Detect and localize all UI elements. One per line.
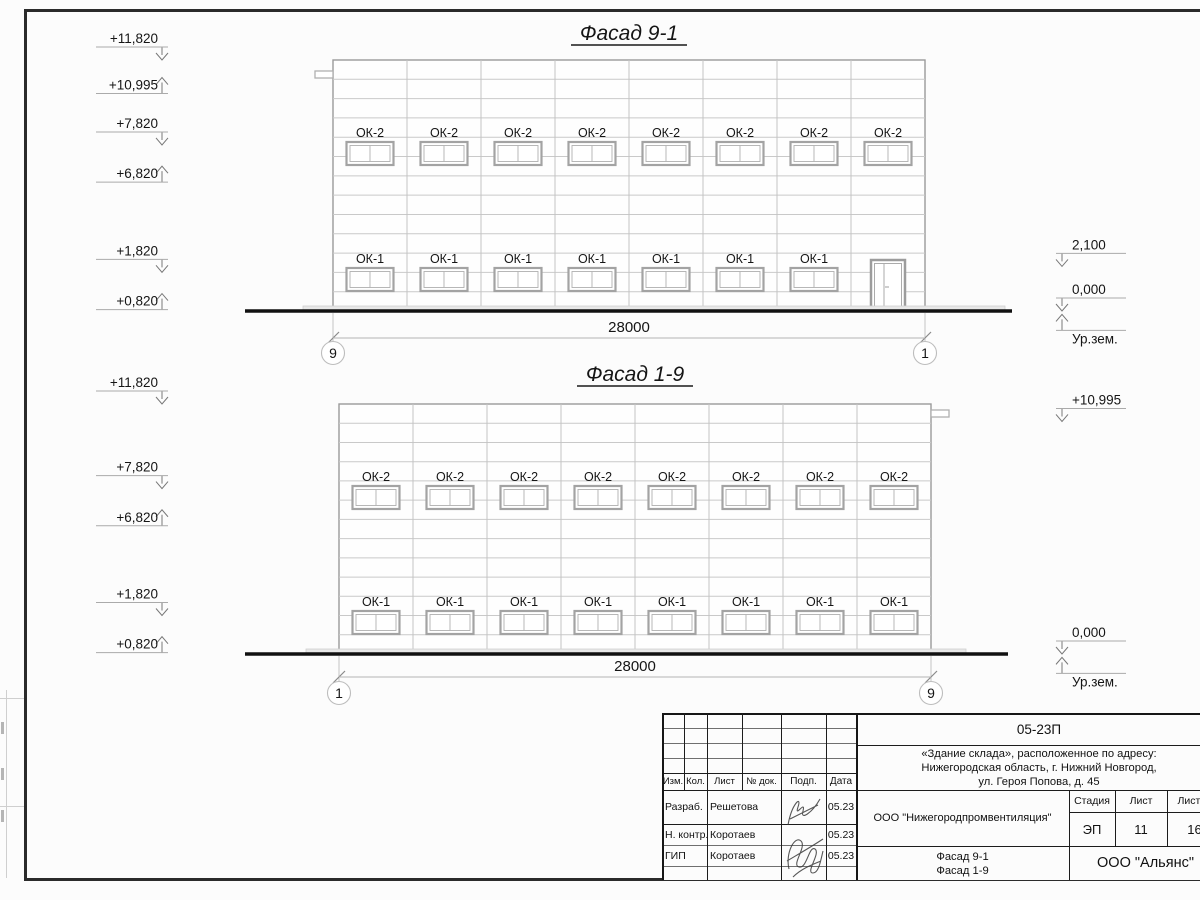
elevation-value: +0,820 [116, 637, 158, 652]
window-label: ОК-2 [658, 470, 686, 484]
elevation-mark: Ур.зем. [1056, 657, 1126, 689]
tb-organization: ООО "Нижегородпромвентиляция" [858, 792, 1067, 844]
tb-address-line2: Нижегородская область, г. Нижний Новгоро… [862, 761, 1200, 775]
window-label: ОК-2 [356, 126, 384, 140]
tb-sheet-label: Лист [1115, 790, 1167, 812]
tb-project-address: «Здание склада», расположенное по адресу… [862, 747, 1200, 789]
window-label: ОК-2 [652, 126, 680, 140]
elevation-value: +7,820 [116, 460, 158, 475]
tb-sheet-value: 11 [1115, 812, 1167, 846]
elevation-mark: +7,820 [96, 116, 168, 145]
window-label: ОК-1 [356, 252, 384, 266]
tb-role-nkontr: Н. контр. [665, 824, 707, 845]
tb-date-gip: 05.23 [826, 845, 856, 866]
window-label: ОК-2 [726, 126, 754, 140]
elevation-mark: +1,820 [96, 243, 168, 272]
tb-sheet-title-line2: Фасад 1-9 [858, 864, 1067, 878]
window-label: ОК-2 [732, 470, 760, 484]
title-block: Изм. Кол. Лист № док. Подп. Дата Разраб.… [662, 713, 1200, 880]
tb-stage-label: Стадия [1069, 790, 1115, 812]
window-label: ОК-1 [504, 252, 532, 266]
tb-sheet-title: Фасад 9-1 Фасад 1-9 [858, 850, 1067, 878]
tb-address-line1: «Здание склада», расположенное по адресу… [862, 747, 1200, 761]
elevation-mark: +0,820 [96, 637, 168, 653]
elevation-value: +11,820 [110, 31, 158, 46]
axis-number: 1 [921, 345, 929, 361]
elevation-mark: +10,995 [96, 78, 168, 94]
window-label: ОК-1 [362, 595, 390, 609]
window-label: ОК-2 [436, 470, 464, 484]
axis-circle-left: 1 [328, 682, 351, 705]
elevation-mark: Ур.зем. [1056, 314, 1126, 346]
elevation-value: +11,820 [110, 375, 158, 390]
window-label: ОК-2 [800, 126, 828, 140]
roof-drain-tab [315, 71, 333, 78]
facade-view-Фасад-1-9: Фасад 1-9ОК-2ОК-2ОК-2ОК-2ОК-2ОК-2ОК-2ОК-… [96, 363, 1126, 705]
axis-circle-right: 9 [920, 682, 943, 705]
tb-col-ndok: № док. [742, 773, 781, 790]
elevation-value: +7,820 [116, 116, 158, 131]
tb-stage-value: ЭП [1069, 812, 1115, 846]
window-label: ОК-2 [806, 470, 834, 484]
elevation-value: 0,000 [1072, 282, 1106, 297]
window-label: ОК-1 [510, 595, 538, 609]
facade-title: Фасад 1-9 [586, 363, 685, 386]
window-label: ОК-2 [504, 126, 532, 140]
window-label: ОК-1 [800, 252, 828, 266]
elevation-value: 2,100 [1072, 237, 1106, 252]
window-label: ОК-2 [578, 126, 606, 140]
window-label: ОК-1 [732, 595, 760, 609]
tb-col-podp: Подп. [781, 773, 826, 790]
roof-drain-tab [931, 410, 949, 417]
elevation-mark: +6,820 [96, 166, 168, 182]
dimension-value: 28000 [608, 319, 650, 336]
window-label: ОК-1 [726, 252, 754, 266]
window-label: ОК-2 [584, 470, 612, 484]
axis-circle-left: 9 [322, 342, 345, 365]
tb-role-gip: ГИП [665, 845, 707, 866]
tb-col-list: Лист [707, 773, 742, 790]
elevation-mark: +1,820 [96, 587, 168, 616]
tb-role-razrab: Разраб. [665, 790, 707, 824]
axis-number: 9 [927, 685, 935, 701]
window-label: ОК-1 [584, 595, 612, 609]
elevation-value: 0,000 [1072, 625, 1106, 640]
window-label: ОК-2 [880, 470, 908, 484]
elevation-mark: 0,000 [1056, 625, 1126, 654]
elevation-value: +6,820 [116, 166, 158, 181]
elevation-value: +0,820 [116, 294, 158, 309]
entrance-door [871, 260, 905, 309]
tb-col-data: Дата [826, 773, 856, 790]
elevation-value: +10,995 [109, 78, 158, 93]
tb-doc-number: 05-23П [856, 715, 1200, 743]
tb-company: ООО "Альянс" [1071, 846, 1200, 880]
facade-title: Фасад 9-1 [580, 22, 678, 45]
elevation-mark: +11,820 [96, 31, 168, 60]
elevation-value: Ур.зем. [1072, 331, 1118, 346]
dimension-28000: 28000 [327, 313, 931, 344]
elevation-mark: +10,995 [1056, 392, 1126, 421]
tb-name-gip: Коротаев [710, 845, 780, 866]
window-label: ОК-1 [578, 252, 606, 266]
window-label: ОК-2 [874, 126, 902, 140]
tb-sheet-title-line1: Фасад 9-1 [858, 850, 1067, 864]
elevation-mark: +11,820 [96, 375, 168, 404]
tb-sheets-label: Листов [1167, 790, 1200, 812]
tb-name-nkontr: Коротаев [710, 824, 780, 845]
dimension-value: 28000 [614, 658, 656, 675]
elevation-mark: +7,820 [96, 460, 168, 489]
signature-korotaev [781, 825, 827, 881]
elevation-mark: 0,000 [1056, 282, 1126, 311]
tb-col-izm: Изм. [662, 773, 684, 790]
window-label: ОК-2 [510, 470, 538, 484]
elevation-mark: 2,100 [1056, 237, 1126, 266]
elevation-mark: +6,820 [96, 510, 168, 526]
tb-sheets-value: 16 [1167, 812, 1200, 846]
elevation-value: +10,995 [1072, 392, 1121, 407]
elevation-value: +1,820 [116, 587, 158, 602]
axis-number: 1 [335, 685, 343, 701]
window-label: ОК-1 [430, 252, 458, 266]
axis-circle-right: 1 [914, 342, 937, 365]
window-label: ОК-1 [652, 252, 680, 266]
elevation-mark: +0,820 [96, 294, 168, 310]
window-label: ОК-2 [362, 470, 390, 484]
axis-number: 9 [329, 345, 337, 361]
tb-address-line3: ул. Героя Попова, д. 45 [862, 775, 1200, 789]
tb-name-razrab: Решетова [710, 790, 780, 824]
drawing-sheet: Фасад 9-1ОК-2ОК-2ОК-2ОК-2ОК-2ОК-2ОК-2ОК-… [0, 0, 1200, 900]
window-label: ОК-1 [658, 595, 686, 609]
tb-col-kol: Кол. [684, 773, 707, 790]
facade-view-Фасад-9-1: Фасад 9-1ОК-2ОК-2ОК-2ОК-2ОК-2ОК-2ОК-2ОК-… [96, 22, 1126, 365]
window-label: ОК-1 [806, 595, 834, 609]
elevation-value: +6,820 [116, 510, 158, 525]
window-label: ОК-1 [436, 595, 464, 609]
tb-date-razrab: 05.23 [826, 790, 856, 824]
elevation-value: Ур.зем. [1072, 674, 1118, 689]
window-label: ОК-2 [430, 126, 458, 140]
dimension-28000: 28000 [333, 656, 937, 683]
elevation-value: +1,820 [116, 243, 158, 258]
window-label: ОК-1 [880, 595, 908, 609]
tb-date-nkontr: 05.23 [826, 824, 856, 845]
